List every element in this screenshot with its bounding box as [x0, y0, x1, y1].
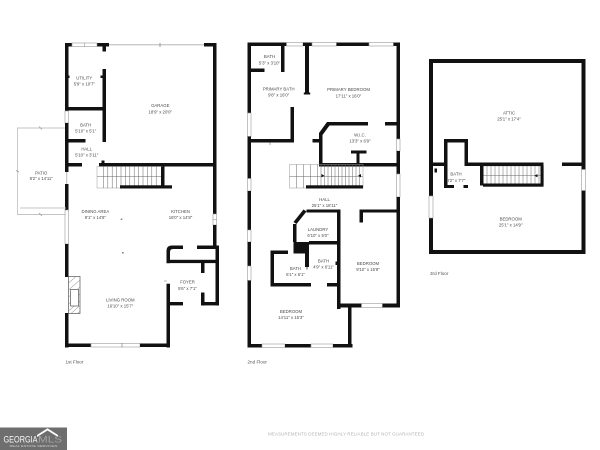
svg-text:HALL: HALL — [81, 147, 92, 152]
svg-text:6'10" x 5'0": 6'10" x 5'0" — [307, 233, 329, 238]
svg-text:BATH: BATH — [80, 123, 91, 128]
svg-text:25'1" x 17'4": 25'1" x 17'4" — [497, 116, 521, 121]
svg-text:LIVING ROOM: LIVING ROOM — [106, 298, 135, 303]
svg-text:3rd Floor: 3rd Floor — [430, 271, 449, 276]
svg-text:5'6" x 7'1": 5'6" x 7'1" — [178, 286, 197, 291]
svg-text:5'3" x 3'10": 5'3" x 3'10" — [259, 60, 281, 65]
svg-text:BATH: BATH — [450, 172, 461, 177]
svg-text:8'2" x 7'7": 8'2" x 7'7" — [447, 178, 466, 183]
svg-text:W.I.C.: W.I.C. — [354, 133, 366, 138]
svg-text:5'9" x 10'7": 5'9" x 10'7" — [74, 81, 96, 86]
svg-text:4'9" x 6'11": 4'9" x 6'11" — [313, 265, 334, 270]
svg-text:9'10" x 15'8": 9'10" x 15'8" — [356, 267, 380, 272]
svg-text:UTILITY: UTILITY — [76, 76, 92, 81]
svg-text:HALL: HALL — [319, 197, 330, 202]
svg-text:BEDROOM: BEDROOM — [500, 217, 523, 222]
svg-text:5'10" x 5'1": 5'10" x 5'1" — [75, 129, 97, 134]
svg-text:9'1" x 14'8": 9'1" x 14'8" — [85, 215, 107, 220]
svg-text:5'10" x 3'11": 5'10" x 3'11" — [75, 152, 99, 157]
svg-text:DINING AREA: DINING AREA — [82, 209, 110, 214]
svg-text:2nd Floor: 2nd Floor — [248, 360, 268, 365]
svg-text:25'1" x 18'11": 25'1" x 18'11" — [312, 203, 338, 208]
svg-text:PRIMARY BEDROOM: PRIMARY BEDROOM — [327, 87, 370, 92]
svg-text:BATH: BATH — [290, 266, 301, 271]
svg-text:25'1" x 14'9": 25'1" x 14'9" — [499, 222, 523, 227]
svg-text:PRIMARY BATH: PRIMARY BATH — [263, 87, 295, 92]
svg-text:16'0" x 14'8": 16'0" x 14'8" — [169, 215, 193, 220]
svg-text:GARAGE: GARAGE — [151, 103, 170, 108]
svg-text:GEORGIA: GEORGIA — [4, 435, 38, 445]
svg-text:BATH: BATH — [264, 54, 275, 59]
svg-text:1st Floor: 1st Floor — [66, 360, 84, 365]
svg-text:PATIO: PATIO — [35, 170, 48, 175]
svg-text:ATTIC: ATTIC — [503, 111, 515, 116]
svg-text:REAL ESTATE SERVICES: REAL ESTATE SERVICES — [10, 444, 58, 448]
svg-text:18'9" x 20'0": 18'9" x 20'0" — [149, 110, 173, 115]
svg-text:BEDROOM: BEDROOM — [357, 261, 380, 266]
svg-text:9'8" x 16'0": 9'8" x 16'0" — [268, 92, 290, 97]
svg-text:BATH: BATH — [318, 259, 329, 264]
svg-text:13'3" x 6'9": 13'3" x 6'9" — [349, 138, 371, 143]
svg-text:16'10" x 15'7": 16'10" x 15'7" — [107, 304, 133, 309]
svg-text:MLS: MLS — [38, 435, 62, 445]
svg-text:6'1" x 5'1": 6'1" x 5'1" — [286, 272, 305, 277]
svg-text:MEASUREMENTS DEEMED HIGHLY REL: MEASUREMENTS DEEMED HIGHLY RELIABLE BUT … — [268, 432, 425, 437]
svg-text:BEDROOM: BEDROOM — [280, 309, 303, 314]
svg-text:14'11" x 15'3": 14'11" x 15'3" — [278, 315, 304, 320]
svg-text:8'2" x 14'11": 8'2" x 14'11" — [30, 176, 54, 181]
svg-text:FOYER: FOYER — [180, 280, 195, 285]
svg-text:LAUNDRY: LAUNDRY — [308, 227, 329, 232]
svg-text:17'11" x 16'0": 17'11" x 16'0" — [336, 93, 362, 98]
svg-text:KITCHEN: KITCHEN — [171, 209, 190, 214]
